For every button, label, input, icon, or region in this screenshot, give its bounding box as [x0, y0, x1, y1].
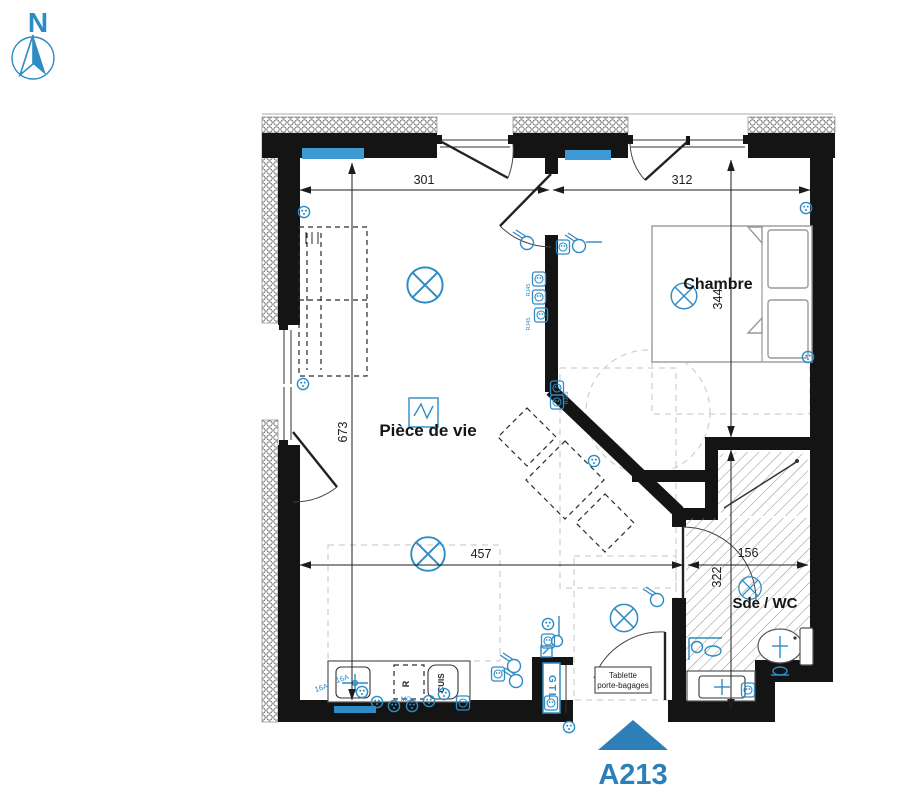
ceiling-light-icon: [411, 537, 445, 571]
rj45-socket-icon: [533, 290, 546, 304]
radiator: [302, 148, 364, 159]
ceiling-light-icon: [407, 267, 442, 302]
entrance-arrow-icon: [598, 720, 668, 750]
dimension-bathroom-width: 156: [738, 546, 759, 560]
compass-north-icon: N: [12, 7, 54, 79]
switch-icon: [513, 230, 534, 250]
microwave-label: MO: [401, 696, 411, 703]
room-label-bathroom: Sde / WC: [732, 595, 797, 612]
room-label-living: Pièce de vie: [379, 421, 476, 440]
switch-icon: [500, 653, 521, 673]
gtl-label: GTL: [546, 675, 557, 701]
unit-marker: A213: [598, 720, 668, 791]
ceiling-light-icon: [610, 604, 637, 631]
table-and-chairs: [498, 408, 634, 552]
socket-icon: [297, 378, 308, 389]
socket-icon: [542, 618, 553, 629]
switch-icon: [565, 233, 586, 253]
switch-icon: [643, 587, 664, 607]
room-label-bedroom: Chambre: [683, 276, 752, 293]
window-living: [437, 135, 513, 178]
luggage-shelf-label-2: porte-bagages: [597, 681, 649, 690]
unit-number: A213: [598, 759, 667, 791]
amp-label-1: 16A: [313, 681, 328, 694]
floor-plan: N: [0, 0, 906, 800]
socket-icon: [298, 206, 309, 217]
rj45-label: RJ45: [526, 318, 532, 331]
dimension-living-depth: 673: [336, 422, 350, 443]
bed: [652, 226, 812, 362]
dimension-living-width-top: 301: [414, 173, 435, 187]
compass-needle-east: [33, 35, 46, 75]
dimension-bedroom-width-top: 312: [672, 173, 693, 187]
luggage-shelf-label-1: Tablette: [609, 671, 638, 680]
rj45-label: RJ45: [564, 392, 570, 405]
socket-icon: [800, 202, 811, 213]
sofa-dashed: [299, 227, 367, 376]
fridge-label: R: [401, 680, 411, 687]
pillow: [768, 230, 808, 288]
dimension-bathroom-depth: 322: [710, 567, 724, 588]
socket-icon: [588, 455, 599, 466]
rj45-label: RJ45: [526, 284, 532, 297]
compass-needle-west: [20, 35, 33, 75]
radiator: [565, 150, 611, 160]
rj45-socket-icon: [533, 272, 546, 286]
socket-box-icon: [557, 240, 570, 254]
pillow: [768, 300, 808, 358]
compass-north-label: N: [28, 7, 48, 38]
socket-icon: [563, 721, 574, 732]
dimension-living-width-bottom: 457: [471, 547, 492, 561]
socket-box-icon: [492, 667, 505, 681]
